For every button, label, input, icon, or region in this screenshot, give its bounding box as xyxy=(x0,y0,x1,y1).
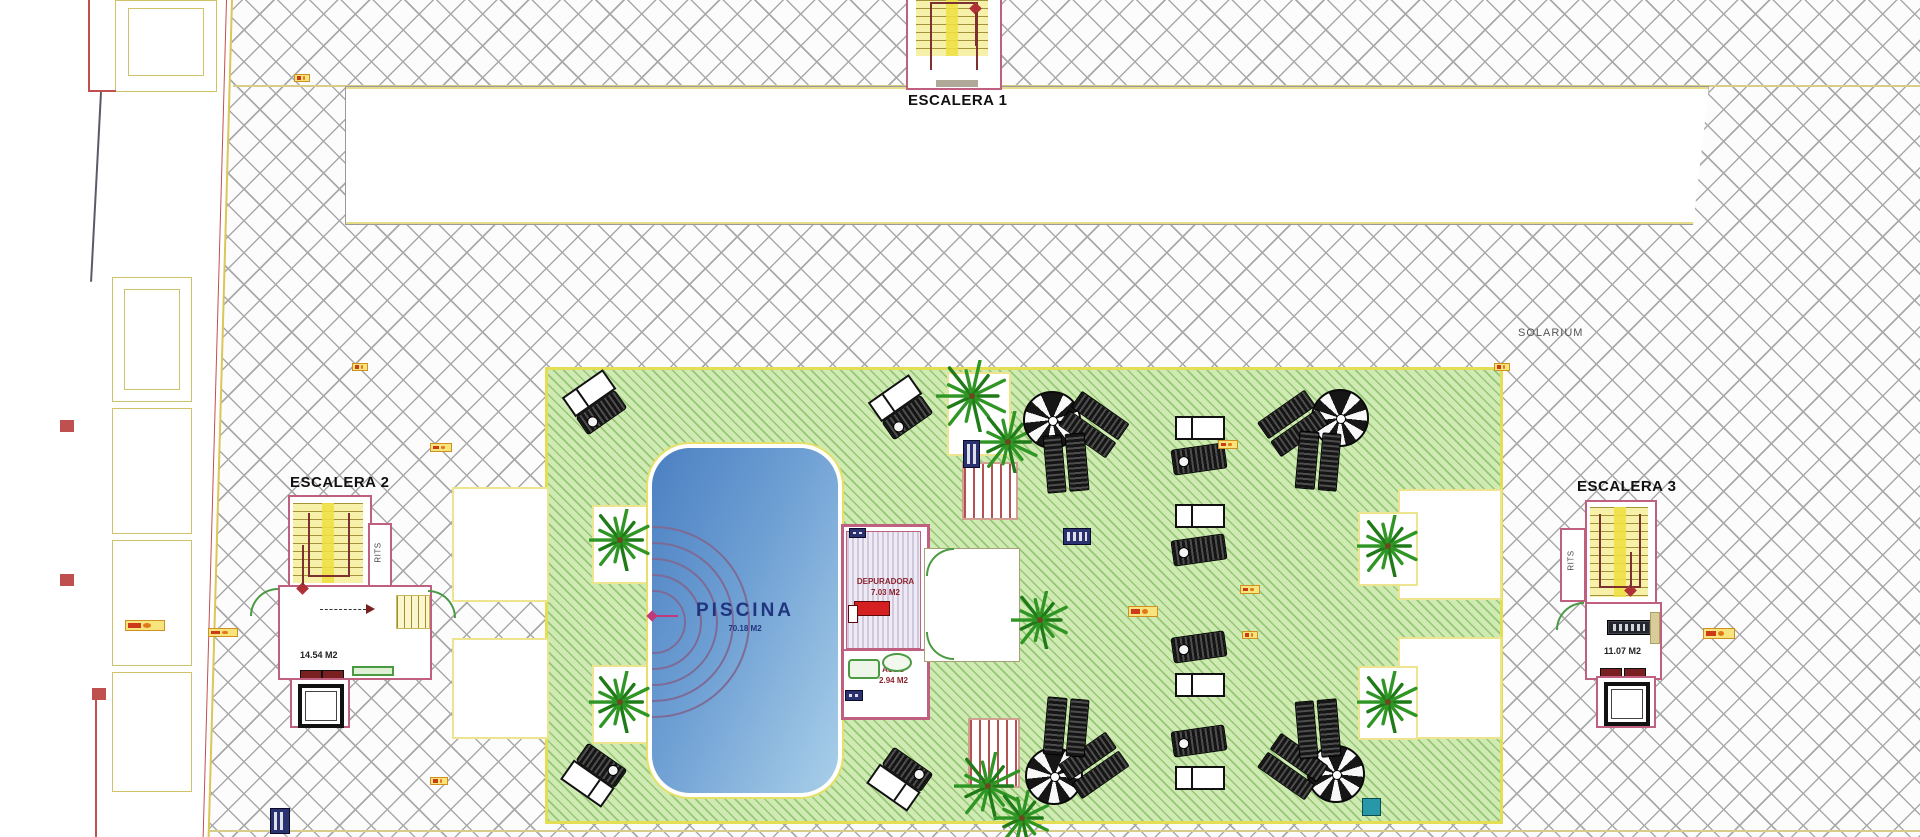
room-divider-wall xyxy=(844,649,927,651)
sun-lounger-pair xyxy=(1043,432,1090,491)
stair-flight xyxy=(396,595,430,629)
escalera-3-label: ESCALERA 3 xyxy=(1577,478,1676,495)
sink-icon xyxy=(882,653,912,672)
palm-tree-icon xyxy=(589,671,651,738)
planter-square xyxy=(452,638,549,739)
stair-rail xyxy=(308,513,350,577)
solarium-label: SOLARIUM xyxy=(1518,327,1583,339)
escalera-2-label: ESCALERA 2 xyxy=(290,474,389,491)
terrace-edge-line xyxy=(210,830,1920,832)
pool-name-label: PISCINA xyxy=(652,600,838,622)
planter-square xyxy=(452,487,549,602)
electrical-box-badge xyxy=(270,808,290,834)
utility-marker-badge xyxy=(352,363,368,371)
utility-marker-badge xyxy=(430,443,452,452)
escalera-2-area-label: 14.54 M2 xyxy=(300,650,338,660)
pool-pump-icon xyxy=(854,601,890,616)
floor-plan-canvas: ESCALERA 1 SOLARIUM PISCINA 70.18 M2 DEP… xyxy=(0,0,1920,837)
rits-label: RITS xyxy=(374,542,383,562)
sun-lounger-white xyxy=(1175,766,1225,790)
walk-line-arrow xyxy=(366,604,375,614)
utility-marker-badge xyxy=(1240,585,1260,594)
pool-dimension-line xyxy=(656,615,678,617)
adjacent-building-outline xyxy=(128,8,204,76)
boundary-dark-line xyxy=(90,92,101,282)
roof-terrace-strip xyxy=(345,86,1709,225)
palm-tree-icon xyxy=(1357,515,1419,582)
stairwell-escalera-2 xyxy=(288,495,372,591)
escalera-3-area-label: 11.07 M2 xyxy=(1604,646,1641,656)
red-marker xyxy=(60,574,74,586)
utility-marker-badge xyxy=(294,74,310,82)
adjacent-building-outline xyxy=(124,289,180,390)
adjacent-building-outline xyxy=(112,408,192,534)
utility-marker-badge xyxy=(1242,631,1258,639)
wall-niche xyxy=(1650,612,1660,644)
sun-lounger-pair xyxy=(1295,698,1342,757)
sun-lounger-white xyxy=(1175,416,1225,440)
stair-rail xyxy=(930,2,978,70)
stair-direction-stem xyxy=(302,545,304,585)
palm-tree-icon xyxy=(589,509,651,576)
utility-marker-badge xyxy=(1494,363,1510,371)
stairwell-escalera-3 xyxy=(1585,500,1657,606)
terrace-yellow-edge xyxy=(346,87,1708,89)
electrical-box-badge xyxy=(963,440,980,468)
adjacent-building-outline xyxy=(112,672,192,792)
utility-marker-badge xyxy=(125,620,165,631)
stair-direction-stem xyxy=(975,12,977,46)
palm-tree-icon xyxy=(1357,671,1419,738)
electrical-box-badge xyxy=(845,690,863,701)
electrical-box-badge xyxy=(849,528,866,538)
boundary-red-line xyxy=(88,0,90,92)
escalera-1-label: ESCALERA 1 xyxy=(908,92,1000,109)
rits-label: RITS xyxy=(1567,550,1576,570)
stair-direction-stem xyxy=(1630,552,1632,588)
toilet-icon xyxy=(848,659,880,679)
swimming-pool: PISCINA 70.18 M2 xyxy=(652,448,838,793)
stair-rail xyxy=(1599,514,1641,588)
stairwell-escalera-1 xyxy=(906,0,1002,90)
utility-marker-badge xyxy=(1128,606,1158,617)
walk-line xyxy=(320,609,366,610)
sun-lounger-white xyxy=(1175,504,1225,528)
depuradora-area-label: 7.03 M2 xyxy=(844,588,927,598)
drain-marker xyxy=(1362,798,1381,816)
electrical-box-badge xyxy=(1063,528,1091,545)
stair-landing xyxy=(936,80,978,87)
red-marker xyxy=(92,688,106,700)
utility-marker-badge xyxy=(1218,440,1238,449)
elevator-shaft xyxy=(1604,682,1650,726)
depuradora-label: DEPURADORA xyxy=(844,577,927,587)
terrace-yellow-edge xyxy=(346,222,1708,224)
sun-lounger-white xyxy=(1175,673,1225,697)
sun-lounger-pair xyxy=(1043,698,1090,757)
utility-marker-badge xyxy=(208,628,238,637)
boundary-red-line xyxy=(88,90,116,92)
utility-marker-badge xyxy=(430,777,448,785)
red-marker xyxy=(60,420,74,432)
boundary-red-line xyxy=(95,700,97,837)
sun-lounger-pair xyxy=(1295,432,1342,491)
adjacent-building-outline xyxy=(112,540,192,666)
room-tag-badge xyxy=(1607,620,1651,635)
utility-marker-badge xyxy=(1703,628,1735,639)
pool-area-label: 70.18 M2 xyxy=(652,624,838,633)
window-sill xyxy=(352,666,394,676)
elevator-shaft xyxy=(298,684,344,728)
palm-tree-icon xyxy=(1011,591,1069,654)
